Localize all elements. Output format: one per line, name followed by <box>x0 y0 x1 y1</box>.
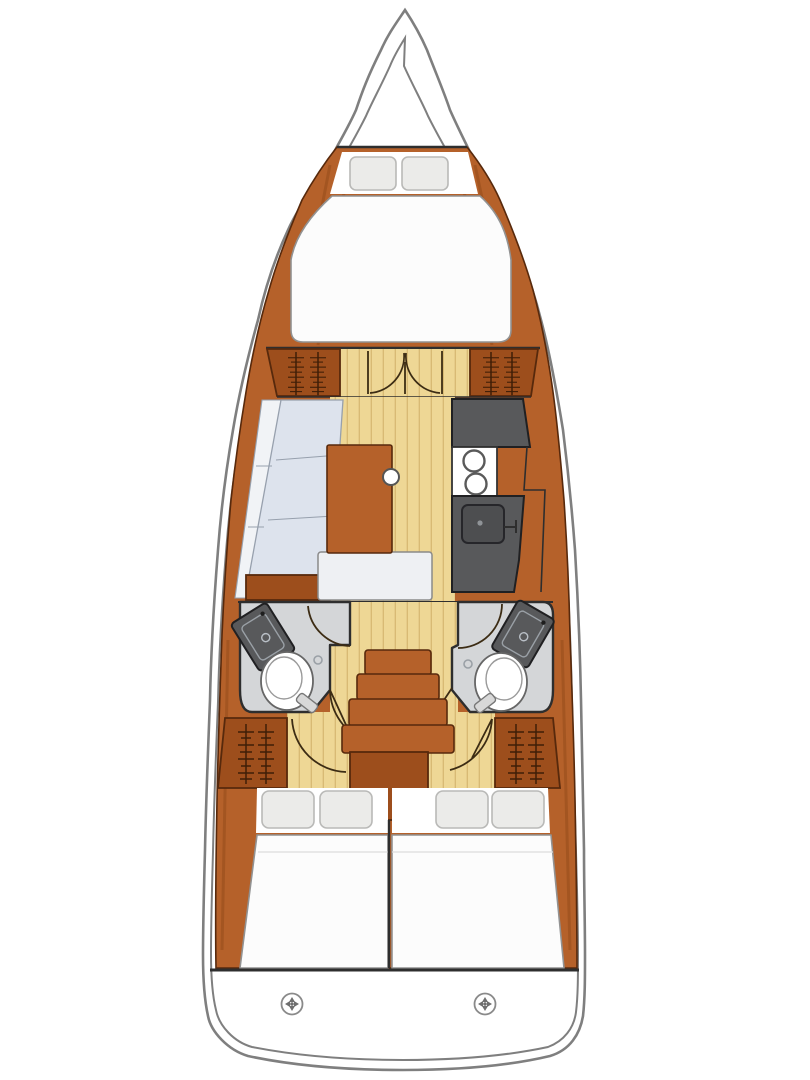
aft-pillow-port-inboard <box>320 791 372 828</box>
nav-seat <box>318 552 432 600</box>
forward-pillow-starboard <box>402 157 448 190</box>
saloon-table <box>327 445 392 553</box>
saloon <box>235 397 455 602</box>
table-latch <box>383 469 399 485</box>
deck-fitting-icon <box>282 994 303 1015</box>
hanging-locker-aft-starboard <box>495 718 560 788</box>
companionway-step-4 <box>342 725 454 753</box>
forward-lockers-and-doors <box>266 348 540 397</box>
yacht-floorplan-diagram <box>0 0 810 1080</box>
hanging-locker-forward-port <box>267 349 340 396</box>
hanging-locker-aft-port <box>218 718 287 788</box>
toilet-port-bowl <box>266 657 302 699</box>
deck-fitting-icon <box>475 994 496 1015</box>
forward-pillow-port <box>350 157 396 190</box>
galley-sink <box>462 505 504 543</box>
aft-berth-starboard-mattress <box>392 835 564 968</box>
companionway-step-2 <box>357 674 439 700</box>
hanging-locker-forward-starboard <box>470 349 538 396</box>
aft-pillow-starboard-outboard <box>492 791 544 828</box>
aft-pillow-port-outboard <box>262 791 314 828</box>
stove-burner-icon <box>464 451 485 472</box>
companionway-step-1 <box>365 650 431 675</box>
stove-burner-icon <box>466 474 487 495</box>
aft-berth-port-mattress <box>240 835 388 968</box>
aft-cabins <box>240 788 564 968</box>
companionway-step-3 <box>349 699 447 726</box>
aft-pillow-starboard-inboard <box>436 791 488 828</box>
forward-vberth-mattress <box>291 196 511 342</box>
sink-drain <box>477 520 482 525</box>
galley-worktop-forward <box>452 399 530 447</box>
